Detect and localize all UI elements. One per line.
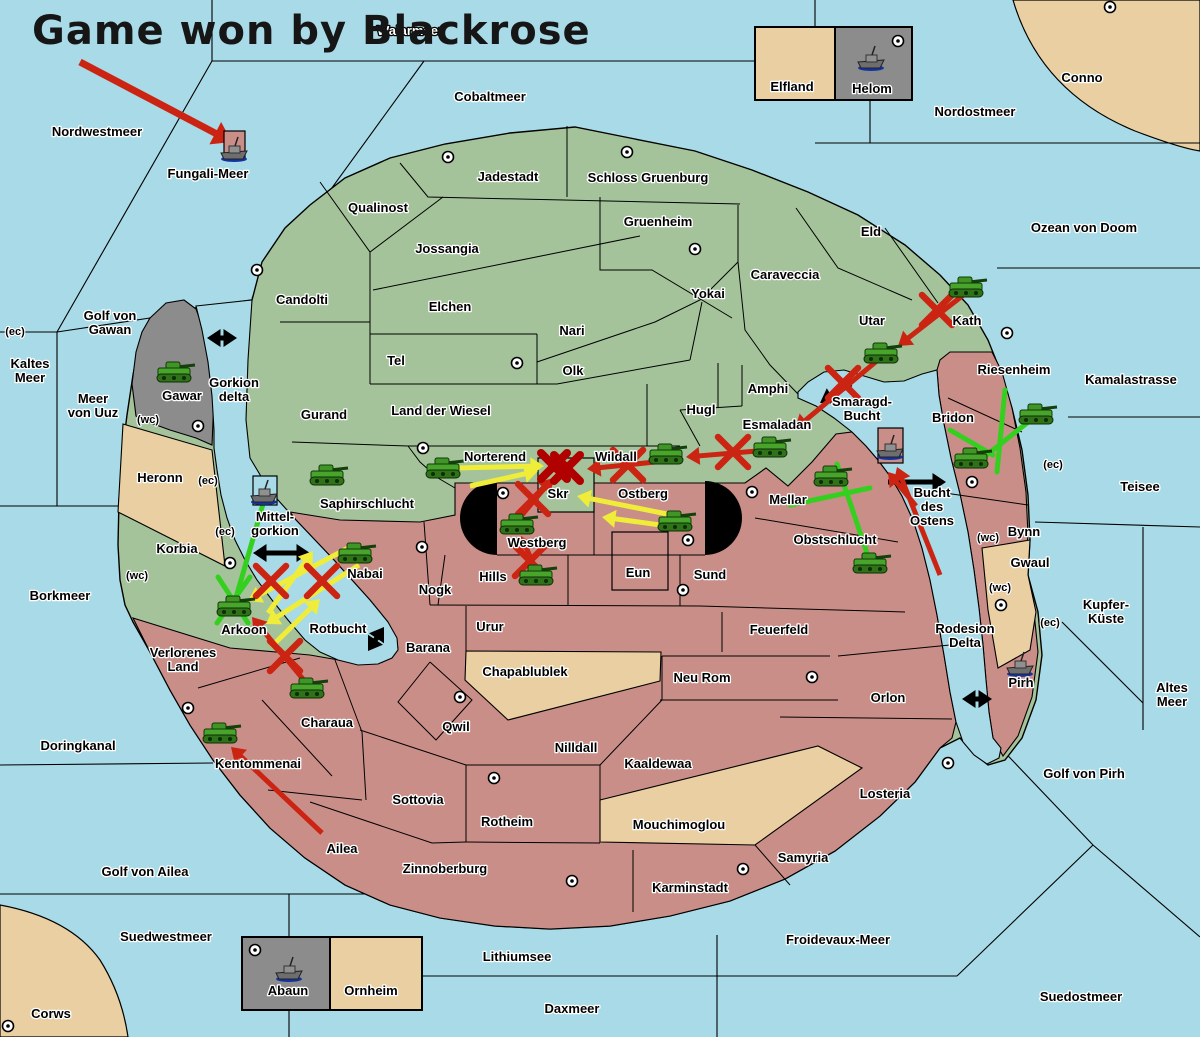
svg-text:gorkion: gorkion bbox=[251, 523, 299, 538]
svg-text:(wc): (wc) bbox=[977, 532, 999, 544]
territory-label[interactable]: Bridon bbox=[932, 410, 974, 425]
svg-text:Lithiumsee: Lithiumsee bbox=[483, 949, 552, 964]
svg-text:(ec): (ec) bbox=[1043, 459, 1063, 471]
svg-text:Urur: Urur bbox=[476, 619, 503, 634]
svg-text:Kaltes: Kaltes bbox=[10, 356, 49, 371]
svg-text:Zinnoberburg: Zinnoberburg bbox=[403, 861, 488, 876]
territory-label[interactable]: Eun bbox=[626, 565, 651, 580]
territory-label[interactable]: Arkoon bbox=[221, 622, 267, 637]
svg-text:Verlorenes: Verlorenes bbox=[150, 645, 217, 660]
svg-text:Qwil: Qwil bbox=[442, 719, 469, 734]
svg-text:Altes: Altes bbox=[1156, 680, 1188, 695]
territory-label[interactable]: Elchen bbox=[429, 299, 472, 314]
territory-label[interactable]: Kentommenai bbox=[215, 756, 301, 771]
territory-label[interactable]: Westberg bbox=[508, 535, 567, 550]
sea-label: Rotbucht bbox=[309, 621, 367, 636]
island-box-label: Abaun bbox=[268, 983, 309, 998]
sea-label: Mittel-gorkion bbox=[251, 509, 299, 538]
sea-label: Kamalastrasse bbox=[1085, 372, 1177, 387]
svg-text:Mouchimoglou: Mouchimoglou bbox=[633, 817, 725, 832]
svg-text:Sund: Sund bbox=[694, 567, 727, 582]
svg-text:Elchen: Elchen bbox=[429, 299, 472, 314]
game-map: WalarmeerNordwestmeerFungali-MeerCobaltm… bbox=[0, 0, 1200, 1037]
svg-text:Barana: Barana bbox=[406, 640, 451, 655]
coast-tag-label: (ec) bbox=[1040, 617, 1060, 629]
svg-text:Doringkanal: Doringkanal bbox=[40, 738, 115, 753]
territory-label[interactable]: Gruenheim bbox=[624, 214, 693, 229]
territory-label[interactable]: Caraveccia bbox=[751, 267, 820, 282]
svg-text:Golf von Pirh: Golf von Pirh bbox=[1043, 766, 1125, 781]
svg-text:Cobaltmeer: Cobaltmeer bbox=[454, 89, 526, 104]
svg-text:Nordostmeer: Nordostmeer bbox=[935, 104, 1016, 119]
city-marker-icon bbox=[498, 488, 509, 499]
territory-label[interactable]: Saphirschlucht bbox=[320, 496, 415, 511]
ship-unit[interactable] bbox=[877, 428, 903, 463]
territory-label[interactable]: Heronn bbox=[137, 470, 183, 485]
sea-label: Golf von Ailea bbox=[102, 864, 190, 879]
svg-text:Qualinost: Qualinost bbox=[348, 200, 409, 215]
svg-text:Abaun: Abaun bbox=[268, 983, 309, 998]
svg-text:Caraveccia: Caraveccia bbox=[751, 267, 820, 282]
svg-text:Mittel-: Mittel- bbox=[256, 509, 294, 524]
island-box-label: Ornheim bbox=[344, 983, 397, 998]
svg-text:Fungali-Meer: Fungali-Meer bbox=[168, 166, 249, 181]
sea-label: KaltesMeer bbox=[10, 356, 49, 385]
coast-tag-label: (ec) bbox=[198, 475, 218, 487]
svg-text:Neu Rom: Neu Rom bbox=[673, 670, 730, 685]
sea-label: Nordwestmeer bbox=[52, 124, 142, 139]
territory-label[interactable]: Rotheim bbox=[481, 814, 533, 829]
territory-label[interactable]: Kath bbox=[953, 313, 982, 328]
territory-label[interactable]: Zinnoberburg bbox=[403, 861, 488, 876]
territory-label[interactable]: Candolti bbox=[276, 292, 328, 307]
territory-label[interactable]: Esmaladan bbox=[743, 417, 812, 432]
territory-label[interactable]: Orlon bbox=[871, 690, 906, 705]
territory-label[interactable]: Sund bbox=[694, 567, 727, 582]
svg-text:Nordwestmeer: Nordwestmeer bbox=[52, 124, 142, 139]
island-box-label: Helom bbox=[852, 81, 892, 96]
svg-text:Mellar: Mellar bbox=[769, 492, 807, 507]
territory-label[interactable]: Land der Wiesel bbox=[391, 403, 491, 418]
svg-text:Wildall: Wildall bbox=[595, 449, 637, 464]
sea-label: Nordostmeer bbox=[935, 104, 1016, 119]
svg-text:Land: Land bbox=[167, 659, 198, 674]
svg-text:Bucht: Bucht bbox=[844, 408, 882, 423]
svg-text:(wc): (wc) bbox=[137, 414, 159, 426]
territory-label[interactable]: Tel bbox=[387, 353, 405, 368]
svg-text:Skr: Skr bbox=[548, 486, 569, 501]
svg-text:Tel: Tel bbox=[387, 353, 405, 368]
svg-text:Golf von Ailea: Golf von Ailea bbox=[102, 864, 190, 879]
svg-text:Meer: Meer bbox=[15, 370, 45, 385]
sea-label: Lithiumsee bbox=[483, 949, 552, 964]
territory-label[interactable]: Nari bbox=[559, 323, 584, 338]
territory-label[interactable]: Amphi bbox=[748, 381, 788, 396]
ship-unit[interactable] bbox=[251, 476, 277, 505]
svg-text:Eld: Eld bbox=[861, 224, 881, 239]
svg-text:Suedwestmeer: Suedwestmeer bbox=[120, 929, 212, 944]
map-title: Game won by Blackrose bbox=[32, 8, 591, 54]
territory-label[interactable]: Ailea bbox=[326, 841, 358, 856]
city-marker-icon bbox=[622, 147, 633, 158]
sea-label: Cobaltmeer bbox=[454, 89, 526, 104]
territory-label[interactable]: Chapablublek bbox=[482, 664, 568, 679]
territory-label[interactable]: Obstschlucht bbox=[793, 532, 877, 547]
coast-tag-label: (ec) bbox=[215, 526, 235, 538]
territory-label[interactable]: Kaaldewaa bbox=[624, 756, 692, 771]
svg-text:Samyria: Samyria bbox=[778, 850, 829, 865]
territory-label[interactable]: Qualinost bbox=[348, 200, 409, 215]
svg-text:Helom: Helom bbox=[852, 81, 892, 96]
screenshot-root: WalarmeerNordwestmeerFungali-MeerCobaltm… bbox=[0, 0, 1200, 1037]
svg-text:Orlon: Orlon bbox=[871, 690, 906, 705]
territory-label[interactable]: Gurand bbox=[301, 407, 347, 422]
territory-label[interactable]: Wildall bbox=[595, 449, 637, 464]
svg-text:Kupfer-: Kupfer- bbox=[1083, 597, 1129, 612]
city-marker-icon bbox=[1105, 2, 1116, 13]
svg-text:Yokai: Yokai bbox=[691, 286, 725, 301]
city-marker-icon bbox=[683, 535, 694, 546]
svg-text:Gawar: Gawar bbox=[162, 388, 202, 403]
svg-text:Bynn: Bynn bbox=[1008, 524, 1041, 539]
svg-text:Kath: Kath bbox=[953, 313, 982, 328]
city-marker-icon bbox=[893, 36, 904, 47]
svg-text:Olk: Olk bbox=[563, 363, 585, 378]
territory-label[interactable]: Korbia bbox=[156, 541, 198, 556]
svg-text:Gwaul: Gwaul bbox=[1010, 555, 1049, 570]
svg-text:Eun: Eun bbox=[626, 565, 651, 580]
city-marker-icon bbox=[225, 558, 236, 569]
svg-text:Ostens: Ostens bbox=[910, 513, 954, 528]
svg-text:des: des bbox=[921, 499, 943, 514]
city-marker-icon bbox=[3, 1021, 14, 1032]
territory-label[interactable]: Utar bbox=[859, 313, 885, 328]
sea-label: Golf vonGawan bbox=[84, 308, 137, 337]
svg-text:(ec): (ec) bbox=[198, 475, 218, 487]
city-marker-icon bbox=[443, 152, 454, 163]
city-marker-icon bbox=[690, 244, 701, 255]
sea-label: Kupfer-Küste bbox=[1083, 597, 1129, 626]
city-marker-icon bbox=[252, 265, 263, 276]
territory-label[interactable]: Olk bbox=[563, 363, 585, 378]
svg-text:Smaragd-: Smaragd- bbox=[832, 394, 892, 409]
svg-text:Ornheim: Ornheim bbox=[344, 983, 397, 998]
coast-tag-label: (wc) bbox=[989, 582, 1011, 594]
territory-label[interactable]: Gawar bbox=[162, 388, 202, 403]
svg-text:Amphi: Amphi bbox=[748, 381, 788, 396]
sea-label: Suedwestmeer bbox=[120, 929, 212, 944]
territory-label[interactable]: Mouchimoglou bbox=[633, 817, 725, 832]
svg-text:Conno: Conno bbox=[1061, 70, 1102, 85]
svg-text:Kentommenai: Kentommenai bbox=[215, 756, 301, 771]
svg-text:Kaaldewaa: Kaaldewaa bbox=[624, 756, 692, 771]
svg-text:Golf von: Golf von bbox=[84, 308, 137, 323]
city-marker-icon bbox=[489, 773, 500, 784]
territory-label[interactable]: Qwil bbox=[442, 719, 469, 734]
territory-label[interactable]: Sottovia bbox=[392, 792, 444, 807]
svg-text:Saphirschlucht: Saphirschlucht bbox=[320, 496, 415, 511]
territory-label[interactable]: Charaua bbox=[301, 715, 354, 730]
svg-text:Feuerfeld: Feuerfeld bbox=[750, 622, 809, 637]
territory-label[interactable]: Riesenheim bbox=[978, 362, 1051, 377]
city-marker-icon bbox=[567, 876, 578, 887]
island-box-label: Elfland bbox=[770, 79, 813, 94]
sea-label: Doringkanal bbox=[40, 738, 115, 753]
svg-text:Rotheim: Rotheim bbox=[481, 814, 533, 829]
svg-text:Karminstadt: Karminstadt bbox=[652, 880, 729, 895]
city-marker-icon bbox=[193, 421, 204, 432]
svg-text:Ostberg: Ostberg bbox=[618, 486, 668, 501]
territory-label[interactable]: Gwaul bbox=[1010, 555, 1049, 570]
svg-text:Losteria: Losteria bbox=[860, 786, 911, 801]
svg-text:Arkoon: Arkoon bbox=[221, 622, 267, 637]
sea-label: Fungali-Meer bbox=[168, 166, 249, 181]
city-marker-icon bbox=[455, 692, 466, 703]
territory-label[interactable]: Neu Rom bbox=[673, 670, 730, 685]
svg-text:delta: delta bbox=[219, 389, 250, 404]
sea-label: Ozean von Doom bbox=[1031, 220, 1137, 235]
svg-text:Delta: Delta bbox=[949, 635, 982, 650]
svg-text:Küste: Küste bbox=[1088, 611, 1124, 626]
svg-text:Gawan: Gawan bbox=[89, 322, 132, 337]
svg-text:Esmaladan: Esmaladan bbox=[743, 417, 812, 432]
city-marker-icon bbox=[417, 542, 428, 553]
svg-text:Schloss Gruenburg: Schloss Gruenburg bbox=[588, 170, 709, 185]
svg-text:Westberg: Westberg bbox=[508, 535, 567, 550]
territory-label[interactable]: Karminstadt bbox=[652, 880, 729, 895]
coast-tag-label: (ec) bbox=[5, 326, 25, 338]
sea-label: Corws bbox=[31, 1006, 71, 1021]
svg-text:Bridon: Bridon bbox=[932, 410, 974, 425]
svg-text:Bucht: Bucht bbox=[914, 485, 952, 500]
svg-text:Hugl: Hugl bbox=[687, 402, 716, 417]
city-marker-icon bbox=[418, 443, 429, 454]
svg-text:Riesenheim: Riesenheim bbox=[978, 362, 1051, 377]
territory-label[interactable]: Skr bbox=[548, 486, 569, 501]
territory-label[interactable]: Jadestadt bbox=[478, 169, 539, 184]
svg-text:(wc): (wc) bbox=[989, 582, 1011, 594]
city-marker-icon bbox=[183, 703, 194, 714]
svg-text:Gurand: Gurand bbox=[301, 407, 347, 422]
svg-text:(ec): (ec) bbox=[215, 526, 235, 538]
city-marker-icon bbox=[807, 672, 818, 683]
svg-text:Gorkion: Gorkion bbox=[209, 375, 259, 390]
svg-text:Daxmeer: Daxmeer bbox=[545, 1001, 600, 1016]
svg-text:Obstschlucht: Obstschlucht bbox=[793, 532, 877, 547]
sea-label: Suedostmeer bbox=[1040, 989, 1122, 1004]
island-box-ornheim[interactable] bbox=[330, 937, 422, 1010]
sea-label: Golf von Pirh bbox=[1043, 766, 1125, 781]
svg-text:Meer: Meer bbox=[1157, 694, 1187, 709]
territory-label[interactable]: Nabai bbox=[347, 566, 382, 581]
sea-label: AltesMeer bbox=[1156, 680, 1188, 709]
svg-text:Ailea: Ailea bbox=[326, 841, 358, 856]
city-marker-icon bbox=[747, 487, 758, 498]
svg-text:(ec): (ec) bbox=[1040, 617, 1060, 629]
territory-label[interactable]: Urur bbox=[476, 619, 503, 634]
svg-text:Froidevaux-Meer: Froidevaux-Meer bbox=[786, 932, 890, 947]
territory-label[interactable]: Jossangia bbox=[415, 241, 479, 256]
ship-unit[interactable] bbox=[221, 131, 247, 162]
territory-label[interactable]: Eld bbox=[861, 224, 881, 239]
territory-label[interactable]: Schloss Gruenburg bbox=[588, 170, 709, 185]
svg-text:Kamalastrasse: Kamalastrasse bbox=[1085, 372, 1177, 387]
svg-text:Jossangia: Jossangia bbox=[415, 241, 479, 256]
svg-text:Sottovia: Sottovia bbox=[392, 792, 444, 807]
svg-text:Corws: Corws bbox=[31, 1006, 71, 1021]
svg-text:Hills: Hills bbox=[479, 569, 506, 584]
city-marker-icon bbox=[250, 945, 261, 956]
territory-label[interactable]: Nilldall bbox=[555, 740, 598, 755]
svg-text:Utar: Utar bbox=[859, 313, 885, 328]
territory-label[interactable]: Norterend bbox=[464, 449, 526, 464]
svg-text:Pirh: Pirh bbox=[1008, 675, 1033, 690]
svg-text:(wc): (wc) bbox=[126, 570, 148, 582]
territory-label[interactable]: Bynn bbox=[1008, 524, 1041, 539]
territory-label[interactable]: Pirh bbox=[1008, 675, 1033, 690]
svg-text:Rotbucht: Rotbucht bbox=[309, 621, 367, 636]
svg-text:Charaua: Charaua bbox=[301, 715, 354, 730]
svg-text:Nari: Nari bbox=[559, 323, 584, 338]
territory-label[interactable]: Yokai bbox=[691, 286, 725, 301]
coast-tag-label: (ec) bbox=[1043, 459, 1063, 471]
territory-label[interactable]: Hills bbox=[479, 569, 506, 584]
svg-text:Nabai: Nabai bbox=[347, 566, 382, 581]
svg-text:Meer: Meer bbox=[78, 391, 108, 406]
territory-label[interactable]: Hugl bbox=[687, 402, 716, 417]
city-marker-icon bbox=[996, 600, 1007, 611]
sea-label: Froidevaux-Meer bbox=[786, 932, 890, 947]
svg-text:Norterend: Norterend bbox=[464, 449, 526, 464]
coast-tag-label: (wc) bbox=[137, 414, 159, 426]
svg-text:Teisee: Teisee bbox=[1120, 479, 1160, 494]
coast-tag-label: (wc) bbox=[126, 570, 148, 582]
svg-text:Suedostmeer: Suedostmeer bbox=[1040, 989, 1122, 1004]
svg-text:Gruenheim: Gruenheim bbox=[624, 214, 693, 229]
svg-text:Candolti: Candolti bbox=[276, 292, 328, 307]
svg-text:Jadestadt: Jadestadt bbox=[478, 169, 539, 184]
coast-tag-label: (wc) bbox=[977, 532, 999, 544]
territory-label[interactable]: Ostberg bbox=[618, 486, 668, 501]
territory-label[interactable]: Losteria bbox=[860, 786, 911, 801]
svg-text:Korbia: Korbia bbox=[156, 541, 198, 556]
city-marker-icon bbox=[678, 585, 689, 596]
svg-text:Land der Wiesel: Land der Wiesel bbox=[391, 403, 491, 418]
svg-text:(ec): (ec) bbox=[5, 326, 25, 338]
city-marker-icon bbox=[1002, 328, 1013, 339]
territory-label[interactable]: Mellar bbox=[769, 492, 807, 507]
territory-label[interactable]: Nogk bbox=[419, 582, 452, 597]
svg-text:Rodesion: Rodesion bbox=[935, 621, 994, 636]
svg-text:Chapablublek: Chapablublek bbox=[482, 664, 568, 679]
sea-label: Borkmeer bbox=[30, 588, 91, 603]
city-marker-icon bbox=[967, 477, 978, 488]
svg-text:Nilldall: Nilldall bbox=[555, 740, 598, 755]
sea-label: Conno bbox=[1061, 70, 1102, 85]
svg-text:Nogk: Nogk bbox=[419, 582, 452, 597]
city-marker-icon bbox=[512, 358, 523, 369]
territory-label[interactable]: Feuerfeld bbox=[750, 622, 809, 637]
svg-text:Heronn: Heronn bbox=[137, 470, 183, 485]
territory-label[interactable]: Barana bbox=[406, 640, 451, 655]
svg-text:Ozean von Doom: Ozean von Doom bbox=[1031, 220, 1137, 235]
territory-label[interactable]: Samyria bbox=[778, 850, 829, 865]
sea-label: Teisee bbox=[1120, 479, 1160, 494]
svg-text:von Uuz: von Uuz bbox=[68, 405, 119, 420]
sea-label: Daxmeer bbox=[545, 1001, 600, 1016]
svg-text:Borkmeer: Borkmeer bbox=[30, 588, 91, 603]
city-marker-icon bbox=[738, 864, 749, 875]
city-marker-icon bbox=[943, 758, 954, 769]
svg-text:Elfland: Elfland bbox=[770, 79, 813, 94]
